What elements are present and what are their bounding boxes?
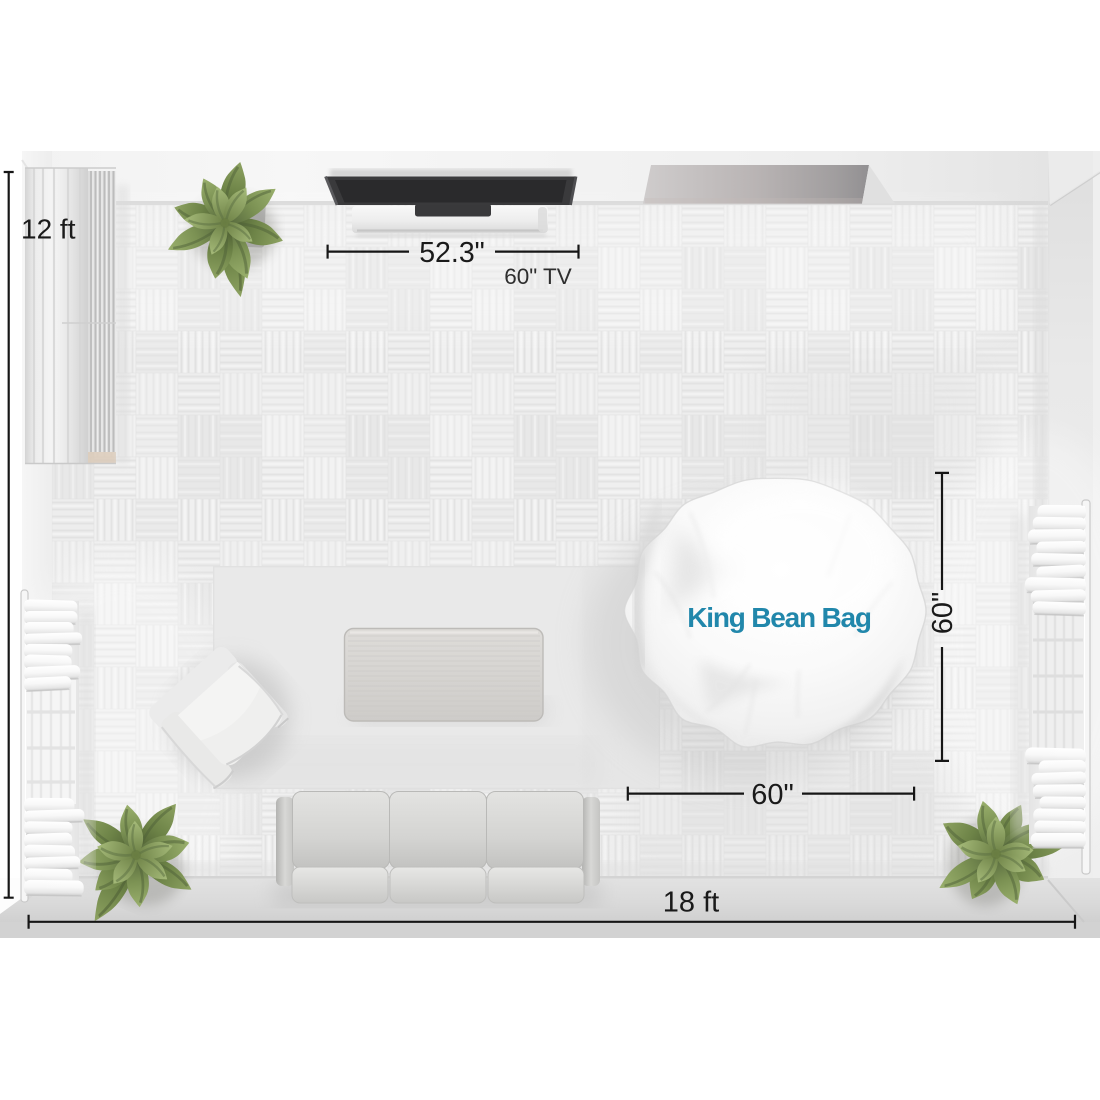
svg-text:12 ft: 12 ft — [21, 214, 76, 245]
svg-text:60": 60" — [751, 779, 794, 811]
svg-text:60" TV: 60" TV — [504, 264, 572, 289]
svg-text:King Bean Bag: King Bean Bag — [687, 602, 871, 633]
svg-text:52.3": 52.3" — [419, 237, 485, 269]
svg-text:60": 60" — [927, 592, 959, 635]
svg-text:18 ft: 18 ft — [663, 887, 719, 919]
